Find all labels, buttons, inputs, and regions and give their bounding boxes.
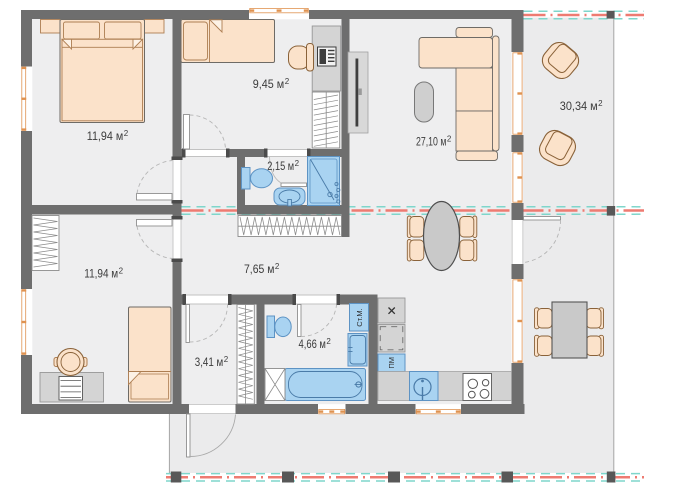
svg-text:11,94 м: 11,94 м [87, 131, 123, 143]
svg-text:11,94 м: 11,94 м [84, 269, 118, 281]
svg-text:30,34 м: 30,34 м [560, 101, 598, 113]
svg-text:2: 2 [285, 77, 290, 86]
svg-text:2: 2 [326, 337, 331, 346]
svg-text:2: 2 [224, 355, 229, 364]
svg-text:Ст.М.: Ст.М. [355, 308, 364, 326]
svg-text:2,15 м: 2,15 м [267, 161, 294, 173]
svg-text:9,45 м: 9,45 м [253, 79, 284, 91]
svg-text:ПМ: ПМ [387, 357, 396, 369]
svg-text:4,66 м: 4,66 м [299, 339, 326, 351]
svg-text:27,10 м: 27,10 м [416, 137, 446, 149]
svg-text:3,41 м: 3,41 м [195, 357, 223, 369]
svg-text:7,65 м: 7,65 м [244, 264, 274, 276]
svg-text:2: 2 [124, 129, 129, 138]
svg-text:2: 2 [275, 262, 280, 271]
svg-text:2: 2 [295, 159, 300, 168]
svg-text:2: 2 [447, 135, 452, 144]
svg-text:2: 2 [598, 99, 603, 108]
svg-text:2: 2 [119, 267, 124, 276]
